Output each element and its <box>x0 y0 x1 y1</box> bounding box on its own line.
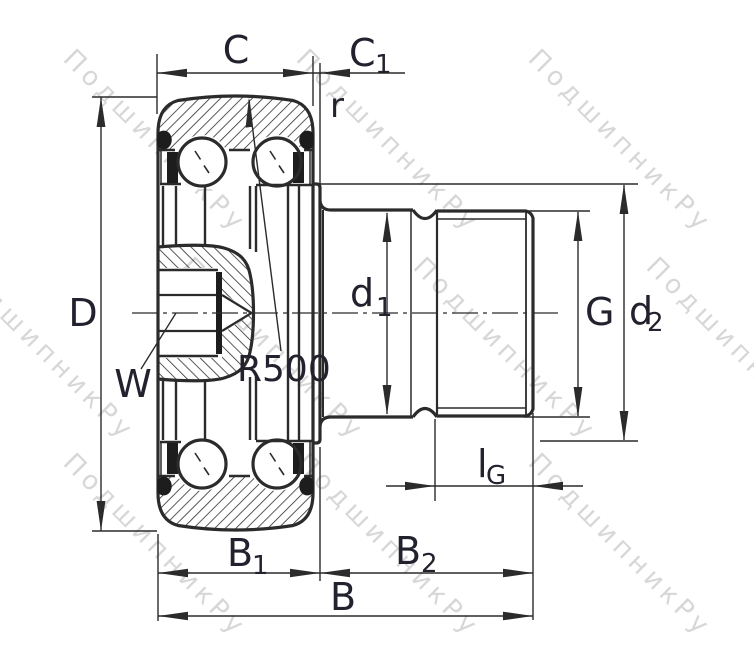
bearing-technical-drawing: ПодшипникРу ПодшипникРу ПодшипникРу Подш… <box>0 0 754 652</box>
seal-bottom-left-bar <box>167 443 178 474</box>
drawing-svg: ПодшипникРу ПодшипникРу ПодшипникРу Подш… <box>0 0 754 652</box>
thread-label-g: G <box>585 290 614 334</box>
dim-label-d1: d <box>350 271 374 315</box>
thread-length-label-lg-sub: G <box>486 461 506 491</box>
watermark-text: ПодшипникРу <box>522 44 718 240</box>
dim-label-outer-diameter-d: D <box>68 291 97 335</box>
dim-label-b2-sub: 2 <box>421 549 438 579</box>
dim-label-d2-sub: 2 <box>647 308 664 338</box>
dim-label-c1: C <box>349 31 376 75</box>
dim-label-c1-sub: 1 <box>375 50 392 80</box>
seal-top-left-bar <box>167 152 178 183</box>
dim-label-b1: B <box>227 531 253 575</box>
watermark-text: ПодшипникРу <box>640 252 754 448</box>
dim-label-c: C <box>223 28 250 72</box>
dim-label-b1-sub: 1 <box>252 551 269 581</box>
dim-label-b2: B <box>395 529 421 573</box>
dim-label-b: B <box>330 575 356 619</box>
dim-label-d1-sub: 1 <box>376 293 393 323</box>
radius-label-r: r <box>330 86 344 126</box>
hex-socket-label-w: W <box>114 362 152 406</box>
watermark-text: ПодшипникРу <box>522 448 718 644</box>
watermark-layer: ПодшипникРу ПодшипникРу ПодшипникРу Подш… <box>0 44 754 644</box>
watermark-text: ПодшипникРу <box>0 252 141 448</box>
crown-radius-label-r500: R500 <box>237 349 331 390</box>
